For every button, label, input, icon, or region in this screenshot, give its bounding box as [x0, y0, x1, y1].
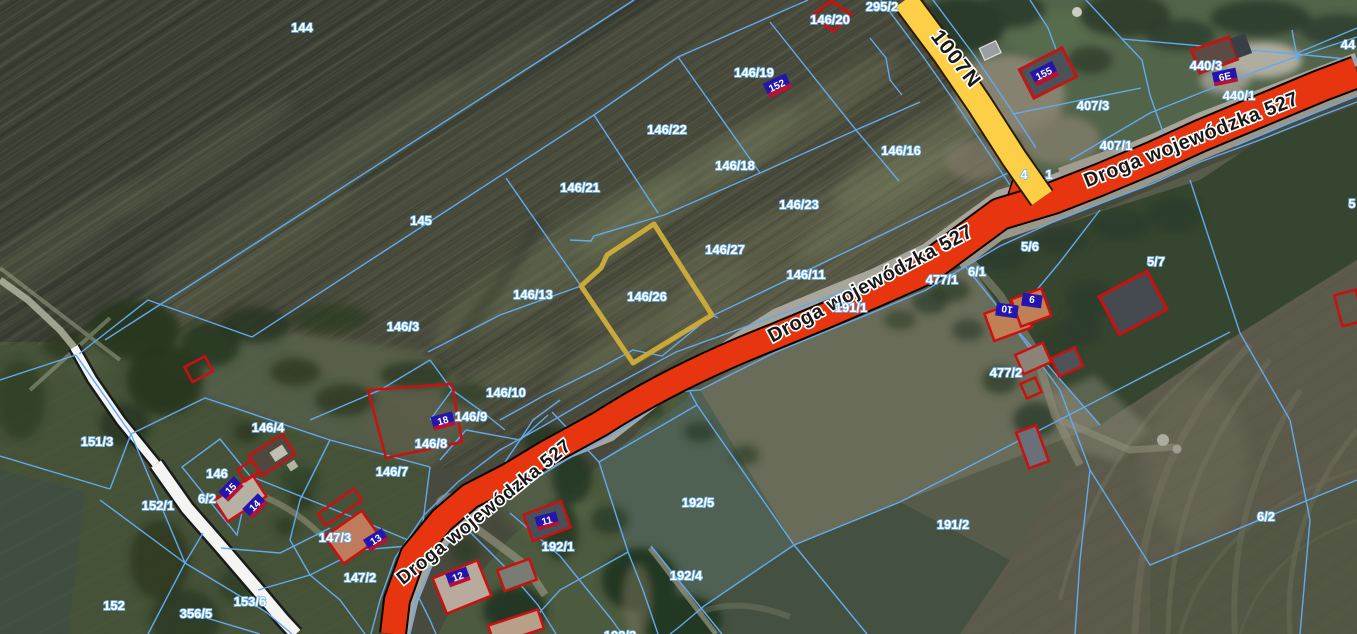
svg-text:5/7: 5/7	[1147, 254, 1165, 269]
svg-text:146/21: 146/21	[560, 180, 600, 195]
svg-text:146/9: 146/9	[455, 409, 488, 424]
svg-text:6/1: 6/1	[968, 264, 986, 279]
svg-text:356/5: 356/5	[180, 606, 213, 621]
svg-text:146/3: 146/3	[387, 319, 420, 334]
svg-text:147/2: 147/2	[344, 570, 377, 585]
svg-text:146/23: 146/23	[779, 197, 819, 212]
svg-text:440/3: 440/3	[1190, 58, 1223, 73]
svg-text:152/1: 152/1	[142, 498, 175, 513]
svg-text:146/22: 146/22	[647, 122, 687, 137]
svg-text:440/1: 440/1	[1223, 88, 1256, 103]
svg-text:146: 146	[206, 466, 228, 481]
svg-text:1: 1	[1045, 167, 1052, 182]
svg-text:192/4: 192/4	[670, 568, 703, 583]
svg-text:44: 44	[1341, 37, 1356, 52]
svg-text:5/6: 5/6	[1021, 239, 1039, 254]
svg-text:151/3: 151/3	[81, 434, 114, 449]
svg-text:477/1: 477/1	[926, 272, 959, 287]
svg-text:6/2: 6/2	[198, 491, 216, 506]
svg-text:4: 4	[1020, 167, 1028, 182]
svg-text:146/11: 146/11	[786, 267, 825, 282]
svg-text:146/16: 146/16	[881, 143, 921, 158]
svg-text:146/10: 146/10	[486, 385, 526, 400]
svg-text:192/3: 192/3	[604, 628, 637, 634]
svg-text:191/1: 191/1	[835, 300, 868, 315]
svg-text:6/2: 6/2	[1257, 509, 1275, 524]
svg-text:477/2: 477/2	[990, 365, 1023, 380]
svg-text:407/1: 407/1	[1100, 138, 1133, 153]
svg-text:146/18: 146/18	[715, 158, 755, 173]
svg-text:407/3: 407/3	[1077, 98, 1110, 113]
svg-text:152: 152	[103, 598, 125, 613]
svg-text:145: 145	[410, 213, 432, 228]
svg-text:144: 144	[291, 20, 313, 35]
svg-text:10: 10	[1001, 302, 1014, 315]
svg-text:191/2: 191/2	[937, 517, 970, 532]
svg-text:146/20: 146/20	[810, 12, 850, 27]
svg-text:146/13: 146/13	[513, 287, 553, 302]
svg-text:153/6: 153/6	[234, 594, 267, 609]
svg-text:146/8: 146/8	[415, 436, 448, 451]
svg-text:295/2: 295/2	[866, 0, 899, 14]
svg-text:192/1: 192/1	[542, 539, 575, 554]
svg-text:146/7: 146/7	[376, 464, 409, 479]
svg-text:146/27: 146/27	[705, 242, 745, 257]
svg-text:146/4: 146/4	[252, 420, 285, 435]
svg-text:146/19: 146/19	[734, 65, 774, 80]
svg-text:192/5: 192/5	[682, 495, 715, 510]
svg-text:147/3: 147/3	[319, 530, 352, 545]
svg-text:5: 5	[1348, 196, 1355, 211]
svg-text:146/26: 146/26	[627, 289, 667, 304]
